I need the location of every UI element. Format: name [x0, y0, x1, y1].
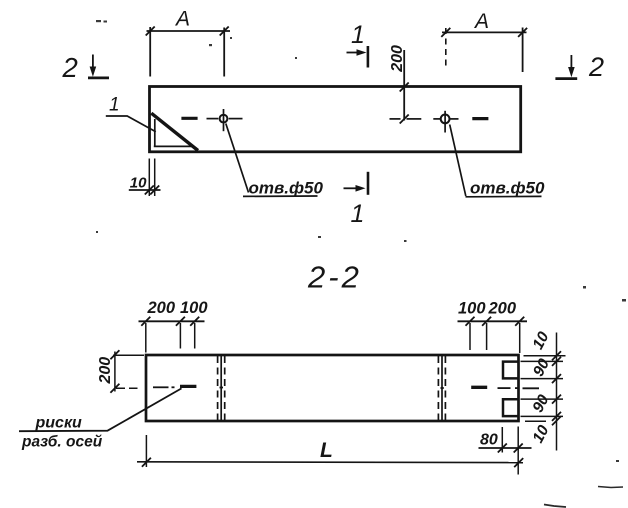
svg-text:отв.ф50: отв.ф50 [249, 179, 324, 198]
svg-text:200: 200 [97, 357, 114, 385]
svg-text:80: 80 [480, 432, 498, 449]
svg-text:1: 1 [351, 200, 365, 228]
svg-text:2-2: 2-2 [307, 260, 362, 295]
svg-text:200: 200 [488, 299, 517, 317]
svg-text:L: L [320, 439, 333, 462]
svg-text:200: 200 [389, 45, 406, 73]
svg-text:100: 100 [180, 299, 208, 317]
svg-text:разб. осей: разб. осей [21, 434, 103, 451]
svg-text:100: 100 [458, 300, 486, 318]
svg-text:отв.ф50: отв.ф50 [470, 179, 545, 198]
svg-text:1: 1 [351, 21, 365, 49]
svg-text:2: 2 [62, 52, 78, 83]
svg-text:А: А [174, 8, 190, 31]
svg-text:2: 2 [588, 52, 604, 82]
svg-text:10: 10 [130, 175, 147, 192]
svg-text:1: 1 [109, 95, 120, 116]
svg-text:А: А [473, 10, 489, 33]
svg-text:риски: риски [35, 415, 83, 432]
svg-text:200: 200 [147, 299, 176, 317]
